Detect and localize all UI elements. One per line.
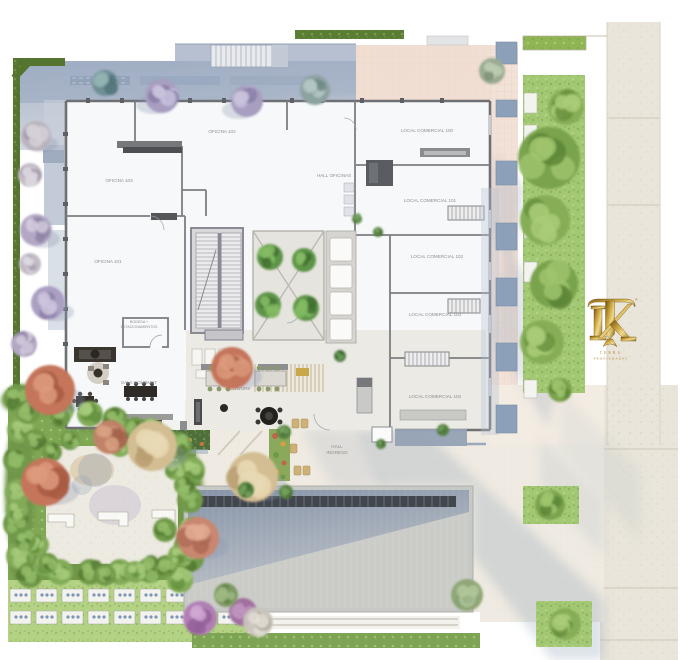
svg-text:OFICINA 103: OFICINA 103 (105, 178, 133, 183)
svg-text:TERRA: TERRA (600, 351, 622, 355)
svg-text:PROPIEDADES: PROPIEDADES (593, 357, 628, 361)
svg-text:OFICINA 101: OFICINA 101 (94, 259, 122, 264)
svg-text:LOCAL COMERCIAL 102: LOCAL COMERCIAL 102 (411, 254, 464, 259)
svg-text:OFICINA 102: OFICINA 102 (208, 129, 236, 134)
svg-text:®: ® (635, 298, 638, 302)
svg-text:SALA GOURMET: SALA GOURMET (121, 380, 157, 385)
svg-text:BODEGA +: BODEGA + (130, 320, 148, 324)
svg-text:HALL: HALL (331, 444, 343, 449)
svg-text:LOCAL COMERCIAL 104: LOCAL COMERCIAL 104 (409, 394, 462, 399)
svg-text:LOCAL COMERCIAL 103: LOCAL COMERCIAL 103 (409, 312, 462, 317)
svg-text:LOCAL COMERCIAL 101: LOCAL COMERCIAL 101 (404, 198, 457, 203)
svg-text:HALL OFICINAS: HALL OFICINAS (317, 173, 351, 178)
svg-text:LOCAL COMERCIAL 100: LOCAL COMERCIAL 100 (401, 128, 454, 133)
svg-text:INGRESO: INGRESO (326, 450, 348, 455)
svg-text:ESTACIONAMIENTOS: ESTACIONAMIENTOS (121, 325, 158, 329)
